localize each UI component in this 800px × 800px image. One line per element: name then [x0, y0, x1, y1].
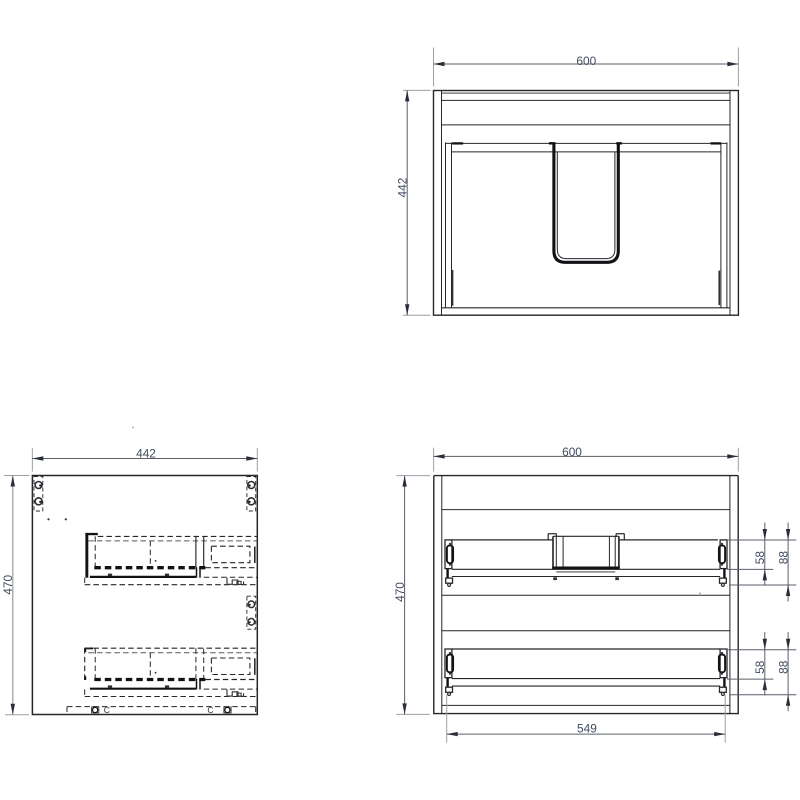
svg-text:C: C — [104, 705, 110, 715]
svg-text:88: 88 — [776, 551, 790, 565]
svg-text:C: C — [207, 705, 213, 715]
svg-text:470: 470 — [1, 574, 15, 594]
svg-text:58: 58 — [753, 660, 767, 674]
svg-text:600: 600 — [562, 445, 582, 459]
svg-text:549: 549 — [577, 722, 597, 736]
svg-text:58: 58 — [753, 551, 767, 565]
svg-text:88: 88 — [776, 660, 790, 674]
svg-text:442: 442 — [136, 446, 156, 460]
svg-text:470: 470 — [393, 582, 407, 602]
svg-text:442: 442 — [395, 177, 409, 197]
svg-text:600: 600 — [576, 54, 596, 68]
